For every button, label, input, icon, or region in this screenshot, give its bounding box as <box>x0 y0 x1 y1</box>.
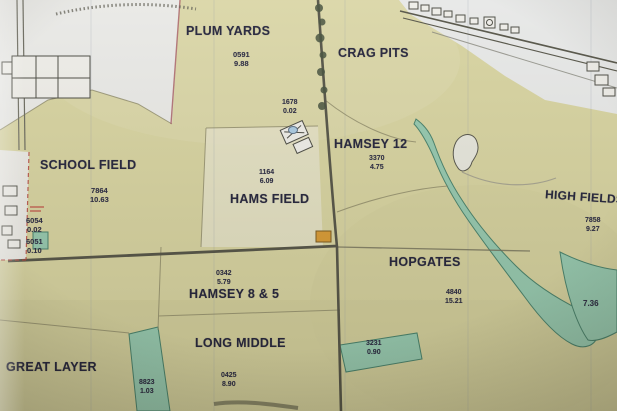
field-label-plum-yards: PLUM YARDS <box>186 24 270 38</box>
field-label-high-fields: HIGH FIELDS <box>545 187 617 206</box>
parcel-1678: 1678 0.02 <box>282 99 298 117</box>
field-label-school-field: SCHOOL FIELD <box>40 158 136 172</box>
field-label-crag-pits: CRAG PITS <box>338 46 409 60</box>
parcel-8823: 8823 1.03 <box>139 379 155 397</box>
field-label-hams-field: HAMS FIELD <box>230 192 309 206</box>
parcel-hopgates: 4840 15.21 <box>445 289 463 307</box>
field-label-hamsey-12: HAMSEY 12 <box>334 137 407 151</box>
map-labels: PLUM YARDS CRAG PITS HAMSEY 12 SCHOOL FI… <box>0 0 617 411</box>
parcel-school-field: 7864 10.63 <box>90 186 109 205</box>
field-label-great-layer: GREAT LAYER <box>6 360 97 374</box>
field-label-hopgates: HOPGATES <box>389 255 461 269</box>
parcel-7-36: 7.36 <box>583 299 599 309</box>
map-photo: PLUM YARDS CRAG PITS HAMSEY 12 SCHOOL FI… <box>0 0 617 411</box>
parcel-high-fields: 7858 9.27 <box>585 217 601 235</box>
parcel-6054: 6054 0.02 <box>26 216 43 235</box>
parcel-long-middle: 0425 8.90 <box>221 372 237 390</box>
field-label-hamsey-8-5: HAMSEY 8 & 5 <box>189 287 279 301</box>
parcel-hams-field: 1164 6.09 <box>259 169 274 187</box>
parcel-hamsey-8-5: 0342 5.79 <box>216 270 232 288</box>
parcel-3231: 3231 0.90 <box>366 340 382 358</box>
parcel-hamsey-12: 3370 4.75 <box>369 155 385 173</box>
parcel-plum-yards: 0591 9.88 <box>233 50 250 69</box>
parcel-6051: 6051 0.10 <box>26 237 43 256</box>
field-label-long-middle: LONG MIDDLE <box>195 336 286 350</box>
